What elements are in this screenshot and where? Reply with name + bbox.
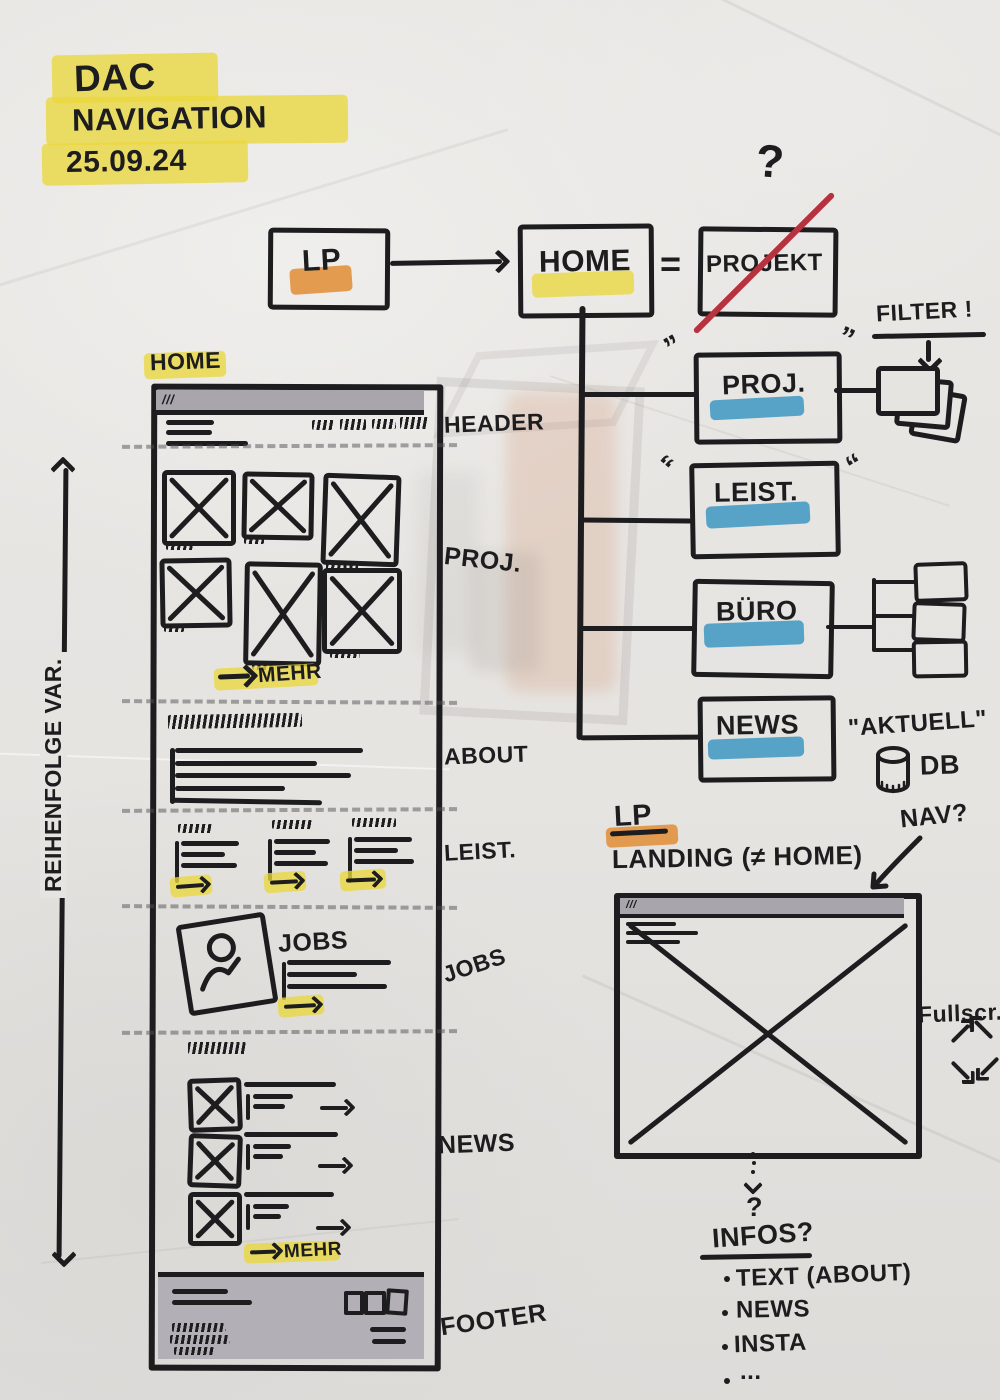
caption-squiggle xyxy=(244,536,264,544)
nav-question-note: NAV? xyxy=(899,799,970,835)
more-arrow-icon xyxy=(250,1250,276,1255)
about-heading-squiggle xyxy=(168,713,302,729)
infos-item: TEXT (ABOUT) xyxy=(736,1259,912,1293)
social-icon xyxy=(364,1291,386,1315)
caption-squiggle xyxy=(166,542,194,550)
order-arrow-up-head xyxy=(50,456,75,481)
board-title-line1: DAC xyxy=(73,56,156,101)
section-label-news: NEWS xyxy=(438,1129,516,1161)
db-label: DB xyxy=(919,749,960,781)
sitemap-node-proj-label: PROJ. xyxy=(721,368,806,402)
sitemap-node-leist-label: LEIST. xyxy=(714,476,799,508)
paper-crease xyxy=(616,0,1000,177)
buero-subtree-branch xyxy=(874,580,916,584)
tree-branch xyxy=(580,392,696,397)
curved-arrow-icon xyxy=(860,834,926,894)
paper-bleed-ghost xyxy=(418,352,638,722)
section-label-footer: FOOTER xyxy=(439,1299,549,1343)
board-title-line2: NAVIGATION xyxy=(72,99,268,138)
filter-note: FILTER ! xyxy=(875,295,973,327)
equals-sign: = xyxy=(660,243,682,285)
sitemap-node-buero-label: BÜRO xyxy=(716,595,798,627)
buero-subtree-branch xyxy=(874,614,916,618)
buero-subpage xyxy=(912,640,969,679)
browser-bar-marks: /// xyxy=(626,899,637,911)
infos-underline xyxy=(700,1253,812,1260)
image-placeholder-icon xyxy=(322,568,402,654)
infos-item: INSTA xyxy=(734,1329,808,1360)
fullscreen-note: Fullscr. xyxy=(918,999,1000,1029)
landing-browser-bar: /// xyxy=(620,898,904,918)
tree-trunk xyxy=(576,306,585,740)
social-icon xyxy=(385,1288,409,1315)
section-label-leist: LEIST. xyxy=(443,836,516,867)
section-label-about: ABOUT xyxy=(444,741,529,771)
jobs-heading: JOBS xyxy=(277,926,349,959)
ditto-mark: ” xyxy=(832,320,860,357)
projekt-question-mark: ? xyxy=(754,133,786,189)
proj-filter-connector xyxy=(834,388,878,393)
database-icon xyxy=(874,746,912,794)
tree-branch xyxy=(580,518,692,524)
browser-bar-marks: /// xyxy=(162,392,174,407)
infos-item: ... xyxy=(740,1358,762,1386)
filter-underline xyxy=(872,332,986,339)
more-arrow-icon xyxy=(218,673,250,679)
flow-arrow-icon xyxy=(390,259,502,266)
lp-node-label: LP xyxy=(301,243,342,279)
ditto-mark: ” xyxy=(655,437,689,473)
image-placeholder-icon xyxy=(241,471,314,540)
tree-branch xyxy=(580,735,700,741)
ditto-mark: ” xyxy=(659,328,689,365)
proj-more-label: MEHR xyxy=(257,660,322,688)
home-page-label: HOME xyxy=(150,347,222,376)
section-label-jobs: JOBS xyxy=(439,943,509,989)
order-note: REIHENFOLGE VAR. xyxy=(40,652,67,898)
social-icon xyxy=(344,1291,364,1315)
caption-squiggle xyxy=(330,650,360,658)
board-date: 25.09.24 xyxy=(66,144,187,180)
home-browser-bar: /// xyxy=(156,390,424,415)
person-icon xyxy=(188,925,257,996)
news-heading-squiggle xyxy=(188,1042,246,1054)
image-placeholder-icon xyxy=(320,473,401,568)
whiteboard-sketch-photo: DAC NAVIGATION 25.09.24 LP HOME = PROJEK… xyxy=(0,0,1000,1400)
section-label-header: HEADER xyxy=(444,408,545,438)
home-node-label: HOME xyxy=(539,244,632,280)
landing-heading: LANDING (≠ HOME) xyxy=(612,840,863,875)
aktuell-note: "AKTUELL" xyxy=(847,705,988,743)
buero-subpage xyxy=(911,601,966,643)
caption-squiggle xyxy=(164,624,184,632)
sitemap-node-news-label: NEWS xyxy=(716,709,800,741)
infos-heading: INFOS? xyxy=(711,1216,815,1254)
image-placeholder-icon xyxy=(162,470,236,546)
image-placeholder-icon xyxy=(159,557,232,628)
image-placeholder-icon xyxy=(243,561,323,666)
jobs-arrow-icon xyxy=(284,1003,316,1009)
infos-question-mark: ? xyxy=(746,1192,763,1223)
buero-subpage xyxy=(913,561,968,603)
buero-subtree-connector xyxy=(826,625,874,629)
buero-subtree-branch xyxy=(874,648,914,652)
section-label-proj: PROJ. xyxy=(443,542,523,579)
home-footer xyxy=(158,1272,424,1359)
order-arrow-down-head xyxy=(51,1242,76,1267)
jobs-image-placeholder xyxy=(175,912,278,1017)
tree-branch xyxy=(580,626,694,631)
infos-item: NEWS xyxy=(736,1295,810,1324)
news-more-label: MEHR xyxy=(283,1238,342,1263)
